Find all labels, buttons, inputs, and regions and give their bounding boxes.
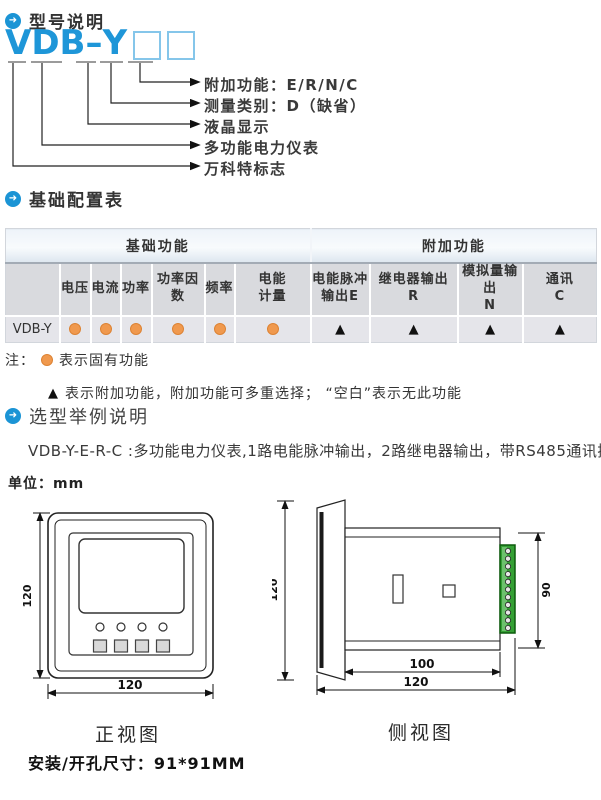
note-optional-function: ▲ 表示附加功能，附加功能可多重选择； “空白”表示无此功能 [48,383,462,403]
section-title-example: 选型举例说明 [29,403,149,429]
fixed-function-cell [121,316,152,343]
fixed-function-cell [91,316,121,343]
note-prefix: 注： [5,350,35,370]
fixed-function-dot [214,323,226,335]
lcd-screen [79,539,184,613]
optional-function-cell: ▲ [370,316,458,343]
model-label-measure-category: 测量类别：D（缺省） [204,95,366,116]
dimension-label-body: 100 [409,657,434,671]
column-header-energy: 电能计量 [235,263,311,316]
model-label-brand-mark: 万科特标志 [204,158,287,179]
side-view-drawing: 120 90 [272,490,601,702]
dimension-label-terminal: 90 [540,582,553,598]
optional-function-cell: ▲ [311,316,370,343]
fixed-function-dot [100,323,112,335]
caption-side-view: 侧视图 [388,718,454,745]
column-header-blank [6,263,60,316]
column-header-current: 电流 [91,263,121,316]
model-label-extra-functions: 附加功能：E/R/N/C [204,74,359,95]
fixed-function-cell [60,316,91,343]
section-title-config: 基础配置表 [29,186,124,211]
column-header-power-factor: 功率因数 [152,263,205,316]
optional-function-triangle: ▲ [409,322,419,337]
fixed-function-dot [69,323,81,335]
group-header-additional: 附加功能 [311,229,597,264]
fixed-function-dot [130,323,142,335]
section-header-example: ➜ 选型举例说明 [5,403,149,429]
fixed-function-cell [235,316,311,343]
group-header-basic: 基础功能 [6,229,311,264]
section-arrow-icon: ➜ [5,191,21,207]
dimension-label-total: 120 [403,675,428,689]
optional-function-triangle: ▲ [48,387,59,400]
column-header-power: 功率 [121,263,152,316]
model-label-lcd: 液晶显示 [204,116,270,137]
fixed-function-dot [41,354,53,366]
caption-front-view: 正视图 [95,720,161,747]
optional-function-triangle: ▲ [555,322,565,337]
optional-function-cell: ▲ [458,316,523,343]
install-dimensions-text: 安装/开孔尺寸：91*91MM [28,750,246,774]
table-row-label: VDB-Y [6,316,60,343]
front-view-drawing: 120 120 [20,496,245,708]
optional-function-triangle: ▲ [485,322,495,337]
column-header-frequency: 频率 [205,263,235,316]
unit-label: 单位：mm [8,473,84,493]
meter-body [345,528,500,650]
fixed-function-cell [152,316,205,343]
dimension-label-height: 120 [21,584,34,607]
fixed-function-cell [205,316,235,343]
model-label-multifunction-meter: 多功能电力仪表 [204,137,320,158]
column-header-relay-output: 继电器输出R [370,263,458,316]
section-arrow-icon: ➜ [5,408,21,424]
dimension-label-height: 120 [272,578,280,601]
fixed-function-dot [267,323,279,335]
column-header-analog-output: 模拟量输出N [458,263,523,316]
config-table: 基础功能 附加功能 电压 电流 功率 功率因数 频率 电能计量 电能脉冲输出E … [5,228,597,343]
column-header-voltage: 电压 [60,263,91,316]
column-header-comm: 通讯C [523,263,597,316]
dimension-label-width: 120 [117,678,142,692]
note-fixed-text: 表示固有功能 [59,350,149,370]
note-optional-text: 表示附加功能，附加功能可多重选择； “空白”表示无此功能 [65,383,462,403]
optional-function-triangle: ▲ [335,322,345,337]
fixed-function-dot [172,323,184,335]
note-fixed-function: 注： 表示固有功能 [5,350,149,370]
section-header-config: ➜ 基础配置表 [5,186,124,211]
example-text: VDB-Y-E-R-C :多功能电力仪表,1路电能脉冲输出，2路继电器输出，带R… [28,440,601,461]
optional-function-cell: ▲ [523,316,597,343]
terminal-block [500,545,515,633]
page: ➜ 型号说明 VDB–Y 附加功能：E/R/N/C [0,0,601,800]
column-header-pulse-output: 电能脉冲输出E [311,263,370,316]
